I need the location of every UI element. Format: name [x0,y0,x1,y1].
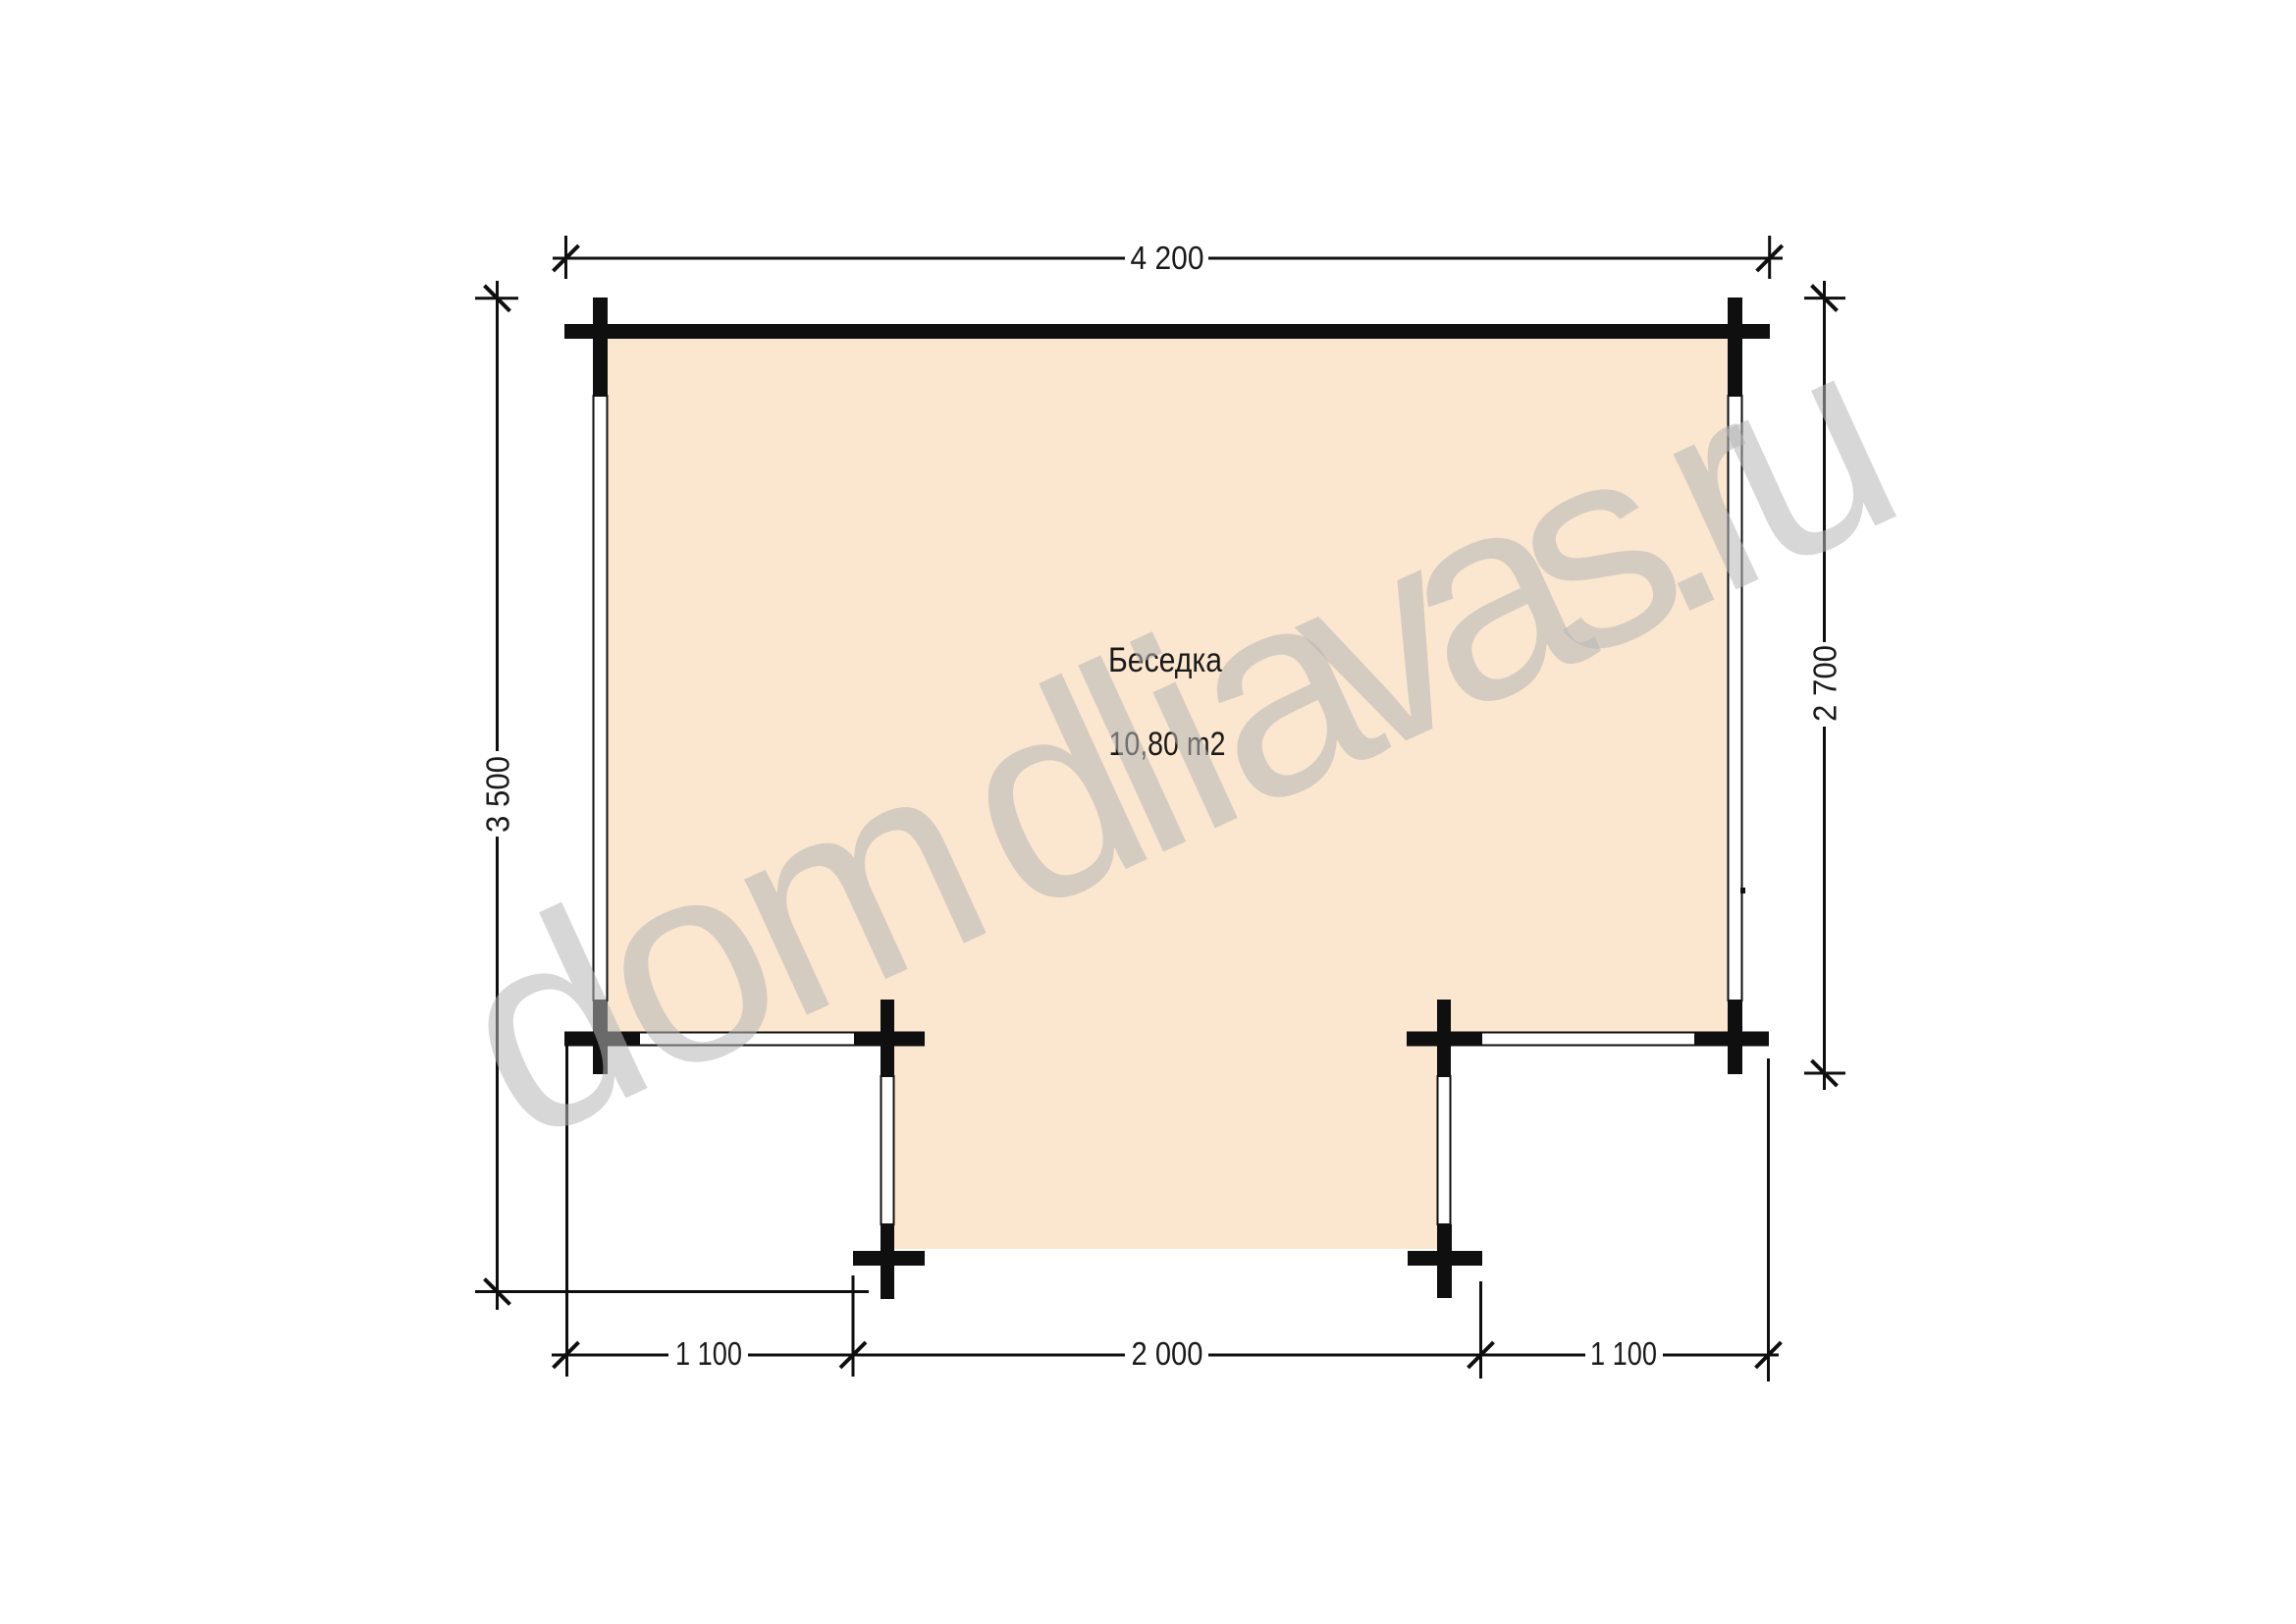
svg-text:2 000: 2 000 [1132,1335,1203,1372]
svg-text:1 100: 1 100 [675,1335,742,1372]
svg-text:3 500: 3 500 [480,756,516,833]
svg-text:1 100: 1 100 [1590,1335,1657,1372]
svg-text:2 700: 2 700 [1807,645,1843,722]
svg-text:4 200: 4 200 [1131,240,1204,276]
